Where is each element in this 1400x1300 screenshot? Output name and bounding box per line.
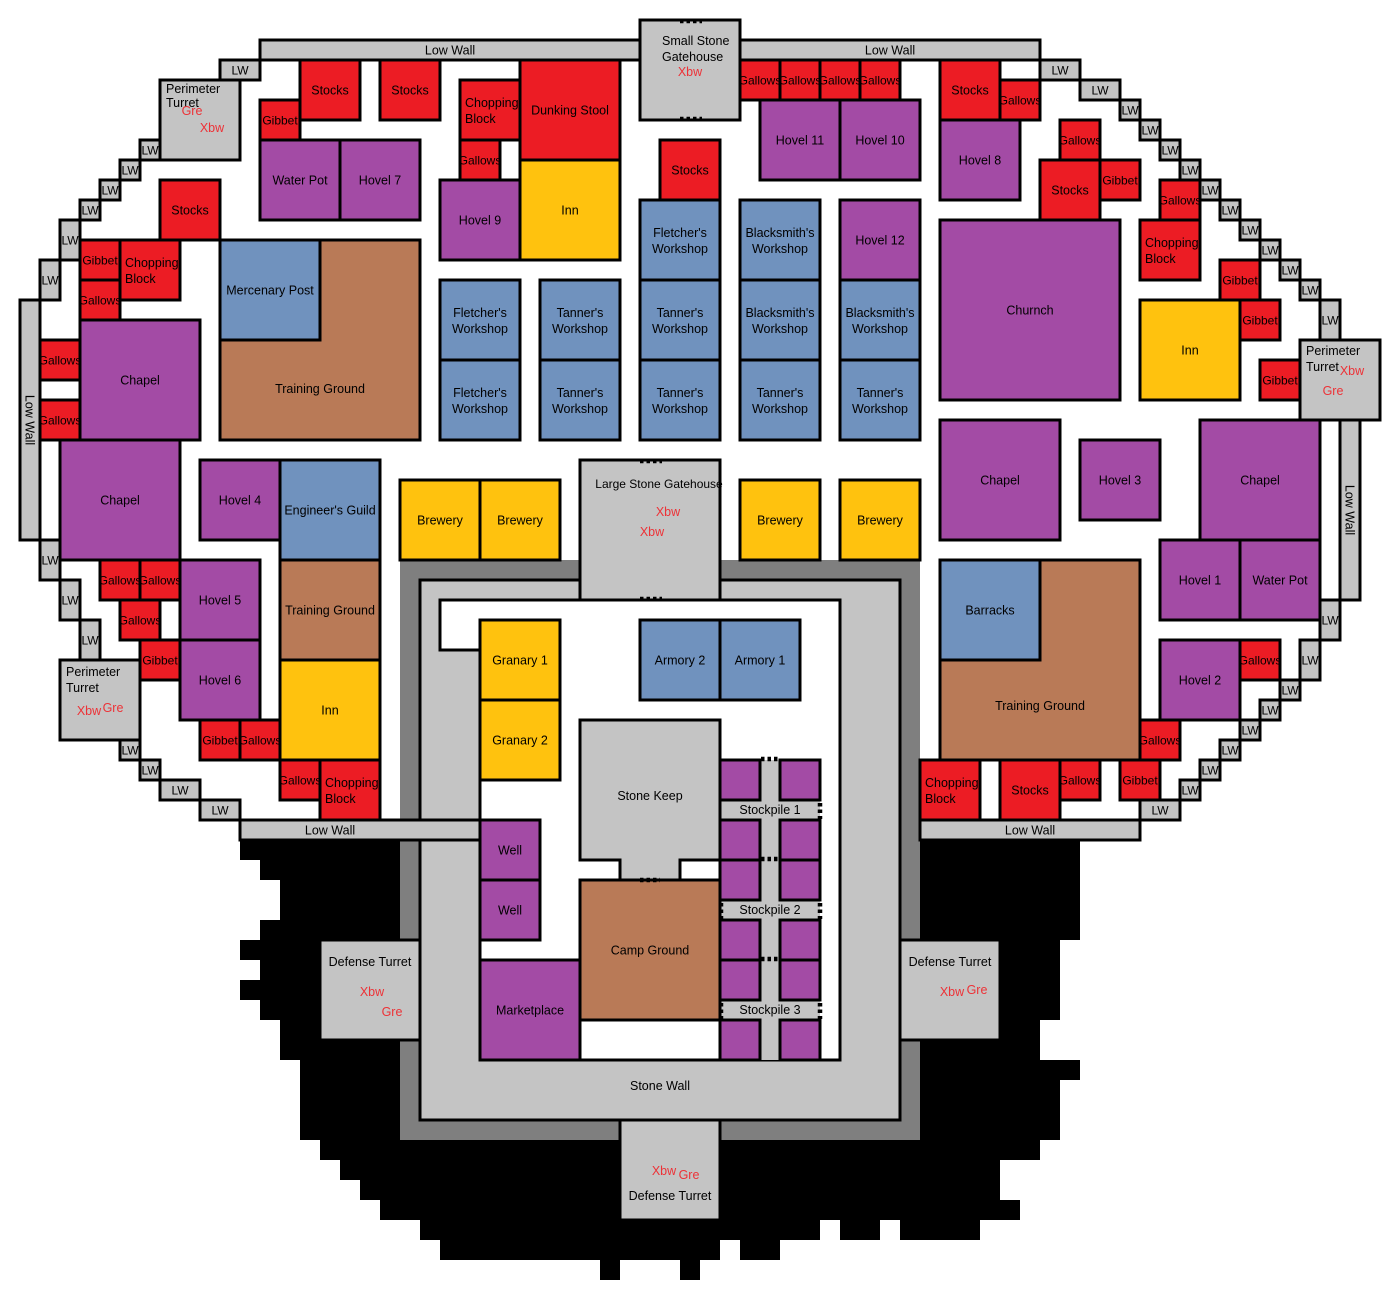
svg-text:Defense Turret: Defense Turret xyxy=(329,955,412,969)
svg-text:Xbw: Xbw xyxy=(640,525,665,539)
svg-text:Gallows: Gallows xyxy=(119,614,162,628)
svg-text:Low Wall: Low Wall xyxy=(865,44,915,58)
svg-text:Stockpile 3: Stockpile 3 xyxy=(739,1003,800,1017)
svg-text:Block: Block xyxy=(125,272,156,286)
svg-text:LW: LW xyxy=(1201,764,1219,778)
svg-text:Brewery: Brewery xyxy=(757,514,804,528)
svg-text:Perimeter: Perimeter xyxy=(166,82,220,96)
svg-text:Xbw: Xbw xyxy=(77,704,102,718)
svg-text:Blacksmith's: Blacksmith's xyxy=(745,226,814,240)
svg-text:LW: LW xyxy=(101,184,119,198)
svg-text:Gibbet: Gibbet xyxy=(82,254,118,268)
svg-text:Dunking Stool: Dunking Stool xyxy=(531,104,609,118)
svg-text:LW: LW xyxy=(211,804,229,818)
svg-text:Chopping: Chopping xyxy=(325,776,379,790)
svg-text:LW: LW xyxy=(1281,684,1299,698)
svg-text:Stocks: Stocks xyxy=(951,84,989,98)
svg-text:Small Stone: Small Stone xyxy=(662,34,729,48)
svg-text:Gre: Gre xyxy=(967,983,988,997)
svg-text:Barracks: Barracks xyxy=(965,604,1014,618)
svg-text:Gre: Gre xyxy=(679,1168,700,1182)
svg-text:Gallows: Gallows xyxy=(99,574,142,588)
svg-text:Hovel 7: Hovel 7 xyxy=(359,174,401,188)
svg-text:LW: LW xyxy=(81,634,99,648)
svg-text:Stocks: Stocks xyxy=(671,164,709,178)
svg-text:Xbw: Xbw xyxy=(360,985,385,999)
svg-text:Gallows: Gallows xyxy=(1059,774,1102,788)
svg-text:Gibbet: Gibbet xyxy=(1122,774,1158,788)
svg-text:Gallows: Gallows xyxy=(1059,134,1102,148)
svg-text:Block: Block xyxy=(925,792,956,806)
svg-text:Armory 1: Armory 1 xyxy=(735,654,786,668)
svg-text:Workshop: Workshop xyxy=(552,402,608,416)
svg-text:Fletcher's: Fletcher's xyxy=(653,226,707,240)
svg-text:Gallows: Gallows xyxy=(279,774,322,788)
svg-text:Fletcher's: Fletcher's xyxy=(453,306,507,320)
svg-text:LW: LW xyxy=(1261,244,1279,258)
svg-text:Brewery: Brewery xyxy=(857,514,904,528)
svg-text:Stone Keep: Stone Keep xyxy=(617,789,682,803)
svg-text:Gallows: Gallows xyxy=(1159,194,1202,208)
svg-text:Hovel 2: Hovel 2 xyxy=(1179,674,1221,688)
svg-text:LW: LW xyxy=(1301,654,1319,668)
svg-text:Tanner's: Tanner's xyxy=(557,386,604,400)
svg-text:Hovel 3: Hovel 3 xyxy=(1099,474,1141,488)
svg-text:Defense Turret: Defense Turret xyxy=(909,955,992,969)
svg-text:Low Wall: Low Wall xyxy=(425,44,475,58)
svg-text:LW: LW xyxy=(1051,64,1069,78)
svg-text:Chapel: Chapel xyxy=(980,474,1020,488)
svg-text:LW: LW xyxy=(141,144,159,158)
svg-text:Churnch: Churnch xyxy=(1006,304,1053,318)
svg-text:Tanner's: Tanner's xyxy=(857,386,904,400)
svg-text:LW: LW xyxy=(1321,614,1339,628)
svg-text:Stockpile 2: Stockpile 2 xyxy=(739,903,800,917)
svg-text:Gre: Gre xyxy=(103,701,124,715)
svg-text:Training Ground: Training Ground xyxy=(285,604,375,618)
svg-text:Tanner's: Tanner's xyxy=(557,306,604,320)
svg-text:Chapel: Chapel xyxy=(1240,474,1280,488)
svg-text:Workshop: Workshop xyxy=(652,322,708,336)
svg-text:Chapel: Chapel xyxy=(100,494,140,508)
svg-text:Hovel 8: Hovel 8 xyxy=(959,154,1001,168)
svg-text:Gallows: Gallows xyxy=(779,74,822,88)
svg-text:Low Wall: Low Wall xyxy=(1005,824,1055,838)
svg-text:Stockpile 1: Stockpile 1 xyxy=(739,803,800,817)
svg-text:Hovel 9: Hovel 9 xyxy=(459,214,501,228)
svg-text:Xbw: Xbw xyxy=(678,65,703,79)
svg-text:Brewery: Brewery xyxy=(497,514,544,528)
svg-text:Hovel 4: Hovel 4 xyxy=(219,494,261,508)
svg-text:Engineer's Guild: Engineer's Guild xyxy=(284,504,375,518)
svg-text:LW: LW xyxy=(121,744,139,758)
svg-text:Xbw: Xbw xyxy=(656,505,681,519)
svg-text:LW: LW xyxy=(1141,124,1159,138)
svg-text:Armory 2: Armory 2 xyxy=(655,654,706,668)
svg-text:Turret: Turret xyxy=(1306,360,1339,374)
svg-text:Chopping: Chopping xyxy=(125,256,179,270)
svg-text:Training Ground: Training Ground xyxy=(995,699,1085,713)
svg-text:LW: LW xyxy=(1151,804,1169,818)
svg-text:Low Wall: Low Wall xyxy=(23,395,37,445)
svg-text:Gallows: Gallows xyxy=(859,74,902,88)
svg-text:LW: LW xyxy=(1221,204,1239,218)
svg-text:Defense Turret: Defense Turret xyxy=(629,1189,712,1203)
svg-text:Workshop: Workshop xyxy=(452,322,508,336)
svg-text:Water Pot: Water Pot xyxy=(1252,574,1308,588)
svg-text:Gallows: Gallows xyxy=(39,414,82,428)
svg-text:Training Ground: Training Ground xyxy=(275,382,365,396)
svg-text:Gallows: Gallows xyxy=(459,154,502,168)
svg-text:LW: LW xyxy=(1181,784,1199,798)
svg-text:Xbw: Xbw xyxy=(652,1164,677,1178)
svg-text:Gallows: Gallows xyxy=(79,294,122,308)
svg-text:Workshop: Workshop xyxy=(552,322,608,336)
svg-text:Turret: Turret xyxy=(66,681,99,695)
svg-text:Gibbet: Gibbet xyxy=(1102,174,1138,188)
svg-text:Perimeter: Perimeter xyxy=(66,665,120,679)
svg-text:LW: LW xyxy=(1221,744,1239,758)
svg-text:Stocks: Stocks xyxy=(311,84,349,98)
svg-text:Workshop: Workshop xyxy=(652,242,708,256)
svg-text:Low Wall: Low Wall xyxy=(305,824,355,838)
svg-text:Stocks: Stocks xyxy=(171,204,209,218)
svg-text:Tanner's: Tanner's xyxy=(657,386,704,400)
svg-text:Hovel 10: Hovel 10 xyxy=(855,134,904,148)
svg-text:LW: LW xyxy=(1181,164,1199,178)
svg-text:Gre: Gre xyxy=(182,104,203,118)
svg-text:Blacksmith's: Blacksmith's xyxy=(845,306,914,320)
svg-text:Hovel 1: Hovel 1 xyxy=(1179,574,1221,588)
svg-text:Workshop: Workshop xyxy=(752,242,808,256)
svg-text:Gibbet: Gibbet xyxy=(1262,374,1298,388)
svg-text:Inn: Inn xyxy=(561,204,578,218)
svg-text:Workshop: Workshop xyxy=(652,402,708,416)
svg-text:LW: LW xyxy=(41,554,59,568)
svg-text:Block: Block xyxy=(325,792,356,806)
svg-text:Hovel 11: Hovel 11 xyxy=(776,134,824,148)
svg-text:Workshop: Workshop xyxy=(752,322,808,336)
svg-text:Chopping: Chopping xyxy=(1145,236,1199,250)
svg-text:Gallows: Gallows xyxy=(819,74,862,88)
svg-text:LW: LW xyxy=(1121,104,1139,118)
svg-text:Hovel 12: Hovel 12 xyxy=(855,234,904,248)
svg-text:Xbw: Xbw xyxy=(200,121,225,135)
svg-text:LW: LW xyxy=(171,784,189,798)
svg-text:Gibbet: Gibbet xyxy=(202,734,238,748)
svg-text:Granary 1: Granary 1 xyxy=(492,654,548,668)
svg-text:Workshop: Workshop xyxy=(852,322,908,336)
svg-text:Low Wall: Low Wall xyxy=(1343,485,1357,535)
svg-text:LW: LW xyxy=(1321,314,1339,328)
svg-text:Gallows: Gallows xyxy=(239,734,282,748)
svg-text:Camp Ground: Camp Ground xyxy=(611,944,690,958)
svg-text:Hovel 5: Hovel 5 xyxy=(199,594,241,608)
svg-text:LW: LW xyxy=(1301,284,1319,298)
svg-text:Workshop: Workshop xyxy=(752,402,808,416)
svg-text:Stocks: Stocks xyxy=(1051,184,1089,198)
svg-text:Gibbet: Gibbet xyxy=(142,654,178,668)
svg-text:LW: LW xyxy=(1261,704,1279,718)
svg-text:Gibbet: Gibbet xyxy=(1222,274,1258,288)
svg-text:LW: LW xyxy=(81,204,99,218)
svg-text:LW: LW xyxy=(61,594,79,608)
svg-text:Block: Block xyxy=(465,112,496,126)
svg-text:Xbw: Xbw xyxy=(940,985,965,999)
svg-text:Workshop: Workshop xyxy=(452,402,508,416)
svg-text:Gallows: Gallows xyxy=(739,74,782,88)
svg-text:LW: LW xyxy=(1201,184,1219,198)
svg-text:Inn: Inn xyxy=(321,704,338,718)
svg-text:Gallows: Gallows xyxy=(999,94,1042,108)
svg-text:Stocks: Stocks xyxy=(391,84,429,98)
svg-text:Mercenary Post: Mercenary Post xyxy=(226,284,314,298)
svg-text:LW: LW xyxy=(1241,724,1259,738)
svg-text:Brewery: Brewery xyxy=(417,514,464,528)
svg-text:Hovel 6: Hovel 6 xyxy=(199,674,241,688)
svg-text:Gre: Gre xyxy=(382,1005,403,1019)
svg-text:LW: LW xyxy=(141,764,159,778)
svg-text:LW: LW xyxy=(231,64,249,78)
svg-text:LW: LW xyxy=(121,164,139,178)
svg-text:Inn: Inn xyxy=(1181,344,1198,358)
svg-text:Water Pot: Water Pot xyxy=(272,174,328,188)
svg-text:Stone Wall: Stone Wall xyxy=(630,1079,690,1093)
svg-text:Stocks: Stocks xyxy=(1011,784,1049,798)
svg-text:Workshop: Workshop xyxy=(852,402,908,416)
svg-text:Blacksmith's: Blacksmith's xyxy=(745,306,814,320)
svg-text:Perimeter: Perimeter xyxy=(1306,344,1360,358)
svg-text:Block: Block xyxy=(1145,252,1176,266)
svg-text:Chapel: Chapel xyxy=(120,374,160,388)
svg-text:LW: LW xyxy=(41,274,59,288)
svg-text:Well: Well xyxy=(498,904,522,918)
svg-text:Gallows: Gallows xyxy=(39,354,82,368)
svg-text:Marketplace: Marketplace xyxy=(496,1004,564,1018)
svg-text:Tanner's: Tanner's xyxy=(757,386,804,400)
svg-text:Gatehouse: Gatehouse xyxy=(662,50,723,64)
svg-text:Gibbet: Gibbet xyxy=(1242,314,1278,328)
svg-text:Chopping: Chopping xyxy=(925,776,979,790)
svg-text:LW: LW xyxy=(1161,144,1179,158)
svg-text:Gre: Gre xyxy=(1323,384,1344,398)
svg-text:Granary 2: Granary 2 xyxy=(492,734,548,748)
svg-text:Gallows: Gallows xyxy=(139,574,182,588)
svg-text:LW: LW xyxy=(61,234,79,248)
svg-text:Gallows: Gallows xyxy=(1239,654,1282,668)
svg-text:LW: LW xyxy=(1091,84,1109,98)
svg-text:Well: Well xyxy=(498,844,522,858)
svg-text:LW: LW xyxy=(1241,224,1259,238)
svg-text:LW: LW xyxy=(1281,264,1299,278)
svg-text:Gallows: Gallows xyxy=(1139,734,1182,748)
svg-text:Large Stone Gatehouse: Large Stone Gatehouse xyxy=(595,477,723,491)
svg-text:Fletcher's: Fletcher's xyxy=(453,386,507,400)
svg-text:Chopping: Chopping xyxy=(465,96,519,110)
svg-text:Tanner's: Tanner's xyxy=(657,306,704,320)
svg-text:Gibbet: Gibbet xyxy=(262,114,298,128)
svg-text:Xbw: Xbw xyxy=(1340,364,1365,378)
